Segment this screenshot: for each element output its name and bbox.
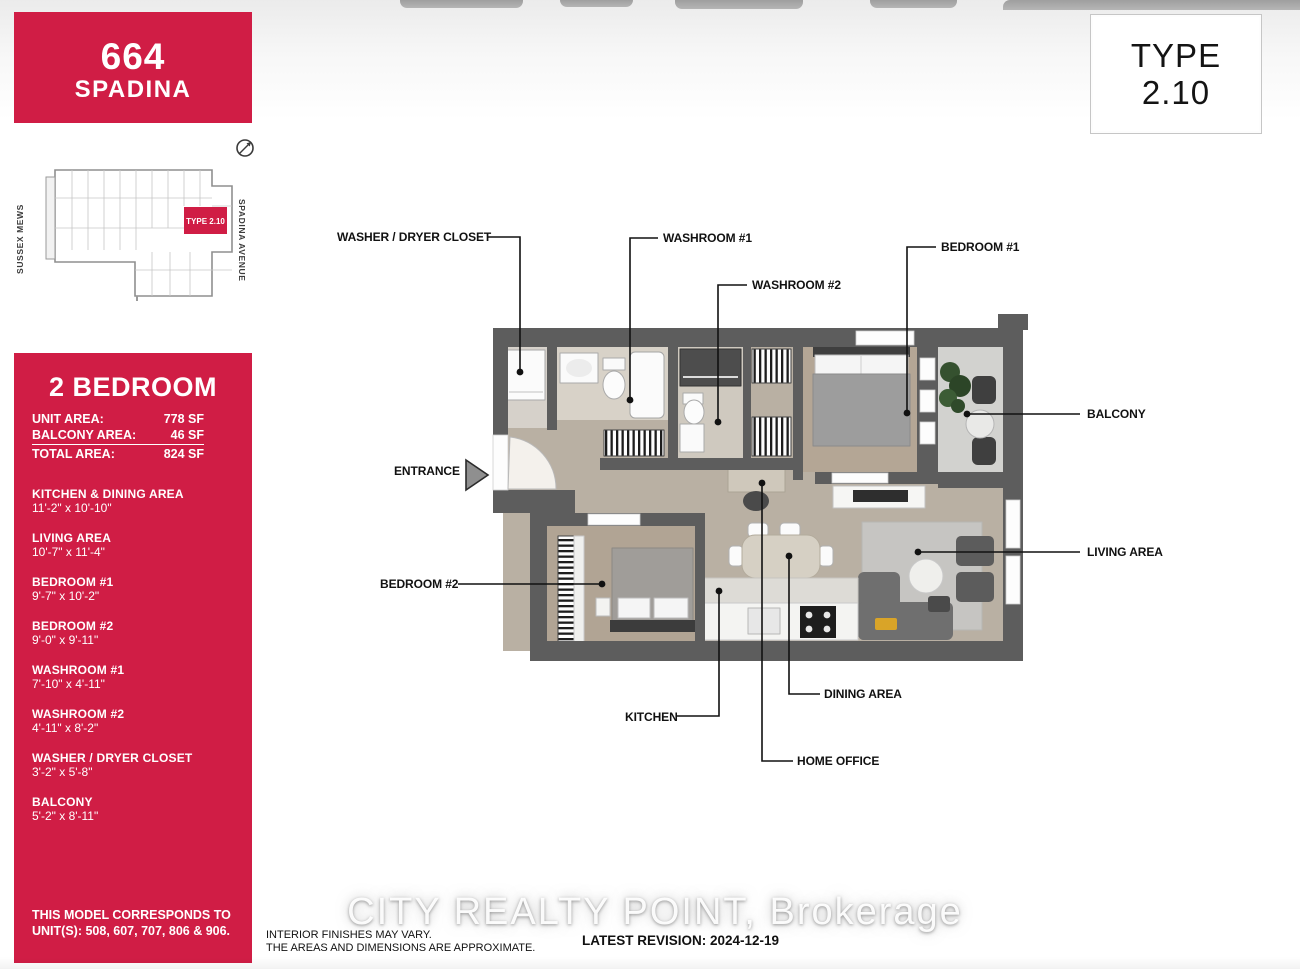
area-label: TOTAL AREA:: [32, 447, 115, 462]
stove: [800, 606, 836, 638]
toolbar-remnant: [1003, 0, 1300, 10]
disclaimer-text: INTERIOR FINISHES MAY VARY. THE AREAS AN…: [266, 929, 535, 954]
label-living-area: LIVING AREA: [1087, 545, 1163, 559]
building-name: SPADINA: [14, 76, 252, 104]
label-entrance: ENTRANCE: [394, 464, 460, 478]
label-washroom1: WASHROOM #1: [663, 231, 752, 245]
label-washer-dryer-closet: WASHER / DRYER CLOSET: [337, 230, 491, 244]
washroom2-sink: [680, 424, 704, 452]
area-value: 824 SF: [164, 447, 204, 462]
balcony-chair: [972, 376, 996, 404]
model-units-note: THIS MODEL CORRESPONDS TO UNIT(S): 508, …: [32, 908, 242, 939]
building-title-block: 664 SPADINA: [14, 12, 252, 123]
closet-sliding-door: [604, 430, 664, 456]
label-balcony: BALCONY: [1087, 407, 1146, 421]
list-item: BEDROOM #2 9'-0" x 9'-11": [32, 619, 242, 647]
area-row-balcony: BALCONY AREA: 46 SF: [32, 428, 204, 445]
list-item: BALCONY 5'-2" x 8'-11": [32, 795, 242, 823]
unit-type-box: TYPE 2.10: [1090, 14, 1262, 134]
entrance-arrow-icon: [466, 460, 488, 490]
area-label: BALCONY AREA:: [32, 428, 136, 443]
armchair: [956, 536, 994, 566]
washroom2-shower: [680, 349, 741, 386]
kitchen-sink: [748, 608, 780, 634]
building-number: 664: [14, 38, 252, 76]
home-office-chair: [743, 491, 769, 511]
washroom1-tub: [630, 352, 664, 418]
coffee-table: [909, 559, 943, 593]
area-row-total: TOTAL AREA: 824 SF: [32, 447, 204, 463]
tv: [853, 490, 908, 502]
floor-plan-rendering: [440, 225, 1100, 790]
label-washroom2: WASHROOM #2: [752, 278, 841, 292]
area-label: UNIT AREA:: [32, 412, 104, 427]
key-plan-highlight: TYPE 2.10: [184, 207, 227, 234]
kitchen-counter: [700, 578, 858, 640]
list-item: KITCHEN & DINING AREA 11'-2" x 10'-10": [32, 487, 242, 515]
building-footprint: TYPE 2.10: [46, 170, 232, 301]
street-label-sussex-mews: SUSSEX MEWS: [15, 199, 25, 279]
bedroom2-wardrobe: [558, 536, 574, 645]
unit-summary-panel: 2 BEDROOM UNIT AREA: 778 SF BALCONY AREA…: [14, 353, 252, 963]
hall-closet: [752, 349, 791, 383]
bedroom2-bed: [610, 548, 695, 632]
area-value: 778 SF: [164, 412, 204, 427]
area-value: 46 SF: [171, 428, 204, 443]
key-plan: TYPE 2.10: [40, 132, 260, 307]
list-item: WASHROOM #1 7'-10" x 4'-11": [32, 663, 242, 691]
unit-type-code: 2.10: [1091, 74, 1261, 111]
armchair: [956, 572, 994, 602]
street-label-spadina-avenue: SPADINA AVENUE: [237, 199, 247, 279]
bedroom2-nightstand: [596, 598, 610, 616]
label-home-office: HOME OFFICE: [797, 754, 879, 768]
label-kitchen: KITCHEN: [625, 710, 678, 724]
toolbar-remnant: [400, 0, 523, 8]
bottom-gradient: [0, 957, 1300, 969]
washroom2-toilet: [684, 400, 704, 424]
toolbar-remnant: [560, 0, 633, 7]
floorplan-sheet: 664 SPADINA TYPE 2.10: [0, 0, 1300, 969]
label-bedroom2: BEDROOM #2: [380, 577, 458, 591]
toolbar-remnant: [675, 0, 803, 9]
list-item: LIVING AREA 10'-7" x 11'-4": [32, 531, 242, 559]
label-dining-area: DINING AREA: [824, 687, 902, 701]
unit-type-word: TYPE: [1091, 37, 1261, 74]
home-office-desk: [728, 468, 785, 492]
room-dimension-list: KITCHEN & DINING AREA 11'-2" x 10'-10" L…: [32, 487, 242, 823]
washroom1-toilet: [603, 371, 625, 399]
compass-icon: [237, 140, 253, 156]
balcony-chair: [972, 437, 996, 465]
label-bedroom1: BEDROOM #1: [941, 240, 1019, 254]
revision-date: LATEST REVISION: 2024-12-19: [582, 933, 779, 948]
bedroom1-bed: [813, 347, 910, 446]
key-plan-highlight-label: TYPE 2.10: [186, 217, 225, 226]
area-row-unit: UNIT AREA: 778 SF: [32, 412, 204, 428]
area-table: UNIT AREA: 778 SF BALCONY AREA: 46 SF TO…: [32, 412, 204, 463]
list-item: WASHROOM #2 4'-11" x 8'-2": [32, 707, 242, 735]
brokerage-watermark: CITY REALTY POINT, Brokerage: [345, 891, 965, 934]
list-item: BEDROOM #1 9'-7" x 10'-2": [32, 575, 242, 603]
toolbar-remnant: [870, 0, 957, 8]
unit-summary-title: 2 BEDROOM: [14, 372, 252, 403]
list-item: WASHER / DRYER CLOSET 3'-2" x 5'-8": [32, 751, 242, 779]
hall-closet: [752, 417, 791, 456]
